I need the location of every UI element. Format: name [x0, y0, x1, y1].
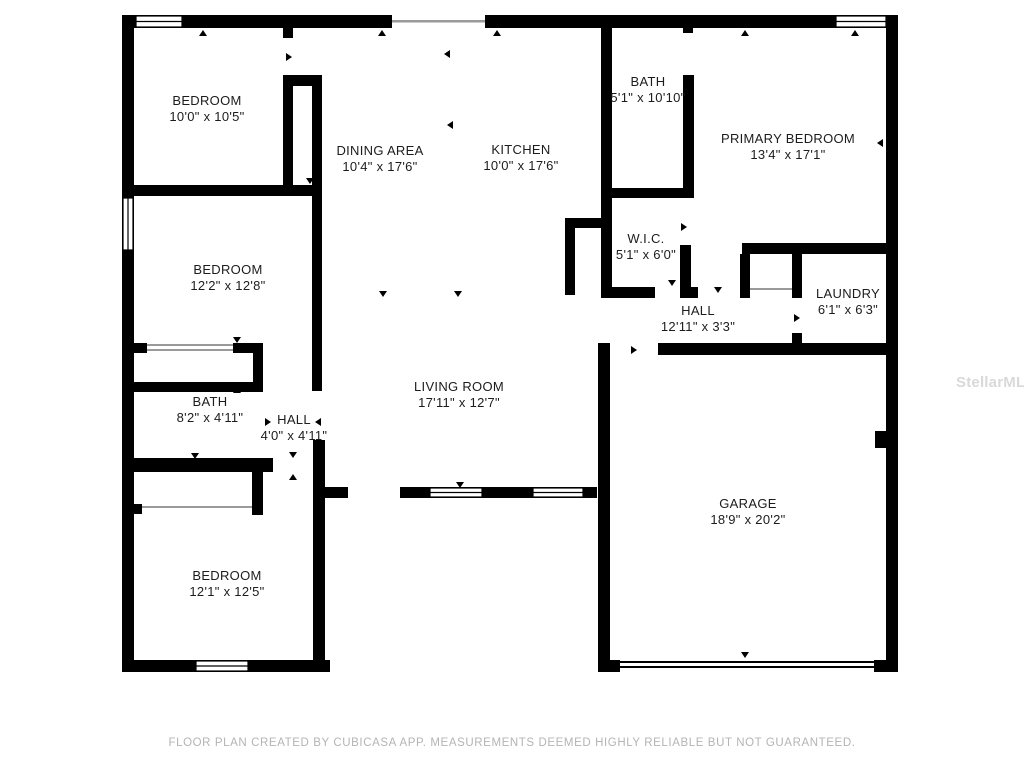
room-name: BATH — [610, 74, 685, 90]
stellar-mls-watermark: StellarMLS — [956, 374, 1024, 391]
room-dimensions: 5'1" x 10'10" — [610, 90, 685, 106]
room-name: HALL — [261, 412, 328, 428]
floor-plan-page: BEDROOM 10'0" x 10'5" DINING AREA 10'4" … — [0, 0, 1024, 768]
door-arrow — [444, 50, 450, 58]
room-dimensions: 6'1" x 6'3" — [816, 302, 880, 318]
door-arrow — [289, 474, 297, 480]
room-label-bedroom-top-left: BEDROOM 10'0" x 10'5" — [169, 93, 244, 125]
room-label-garage: GARAGE 18'9" x 20'2" — [710, 496, 785, 528]
room-dimensions: 10'0" x 17'6" — [483, 158, 558, 174]
door-arrow — [379, 291, 387, 297]
door-arrow — [378, 30, 386, 36]
room-dimensions: 12'2" x 12'8" — [190, 278, 265, 294]
room-dimensions: 4'0" x 4'11" — [261, 428, 328, 444]
room-name: BEDROOM — [189, 568, 264, 584]
room-dimensions: 17'11" x 12'7" — [414, 395, 504, 411]
room-label-living-room: LIVING ROOM 17'11" x 12'7" — [414, 379, 504, 411]
door-arrow — [286, 53, 292, 61]
door-arrow — [668, 280, 676, 286]
room-name: BATH — [177, 394, 244, 410]
room-dimensions: 18'9" x 20'2" — [710, 512, 785, 528]
room-name: BEDROOM — [190, 262, 265, 278]
door-arrow — [714, 287, 722, 293]
door-arrow — [877, 139, 883, 147]
door-arrow — [631, 346, 637, 354]
door-arrow — [493, 30, 501, 36]
room-name: HALL — [661, 303, 735, 319]
door-arrow — [447, 121, 453, 129]
door-arrow — [289, 452, 297, 458]
room-label-bedroom-bottom-left: BEDROOM 12'1" x 12'5" — [189, 568, 264, 600]
room-name: DINING AREA — [336, 143, 423, 159]
room-dimensions: 8'2" x 4'11" — [177, 410, 244, 426]
door-arrow — [851, 30, 859, 36]
room-label-bath-primary: BATH 5'1" x 10'10" — [610, 74, 685, 106]
door-arrow — [741, 30, 749, 36]
room-label-laundry: LAUNDRY 6'1" x 6'3" — [816, 286, 880, 318]
room-label-primary-bedroom: PRIMARY BEDROOM 13'4" x 17'1" — [721, 131, 855, 163]
room-dimensions: 12'1" x 12'5" — [189, 584, 264, 600]
room-name: KITCHEN — [483, 142, 558, 158]
room-name: GARAGE — [710, 496, 785, 512]
room-name: LIVING ROOM — [414, 379, 504, 395]
room-label-dining-area: DINING AREA 10'4" x 17'6" — [336, 143, 423, 175]
door-arrow — [794, 314, 800, 322]
footer-disclaimer: FLOOR PLAN CREATED BY CUBICASA APP. MEAS… — [0, 737, 1024, 749]
garage-door-lines — [620, 661, 874, 668]
door-arrow — [233, 337, 241, 343]
door-arrow — [741, 652, 749, 658]
room-label-bedroom-middle-left: BEDROOM 12'2" x 12'8" — [190, 262, 265, 294]
room-label-wic: W.I.C. 5'1" x 6'0" — [616, 231, 676, 263]
room-dimensions: 10'4" x 17'6" — [336, 159, 423, 175]
door-arrow — [199, 30, 207, 36]
room-name: W.I.C. — [616, 231, 676, 247]
room-dimensions: 5'1" x 6'0" — [616, 247, 676, 263]
room-label-kitchen: KITCHEN 10'0" x 17'6" — [483, 142, 558, 174]
room-dimensions: 13'4" x 17'1" — [721, 147, 855, 163]
room-name: BEDROOM — [169, 93, 244, 109]
room-name: LAUNDRY — [816, 286, 880, 302]
room-name: PRIMARY BEDROOM — [721, 131, 855, 147]
room-label-hall-main: HALL 12'11" x 3'3" — [661, 303, 735, 335]
floor-plan-drawing — [0, 0, 1024, 768]
room-label-bath-hall: BATH 8'2" x 4'11" — [177, 394, 244, 426]
door-arrow — [681, 223, 687, 231]
room-label-hall-small: HALL 4'0" x 4'11" — [261, 412, 328, 444]
door-arrow — [454, 291, 462, 297]
room-dimensions: 10'0" x 10'5" — [169, 109, 244, 125]
room-dimensions: 12'11" x 3'3" — [661, 319, 735, 335]
